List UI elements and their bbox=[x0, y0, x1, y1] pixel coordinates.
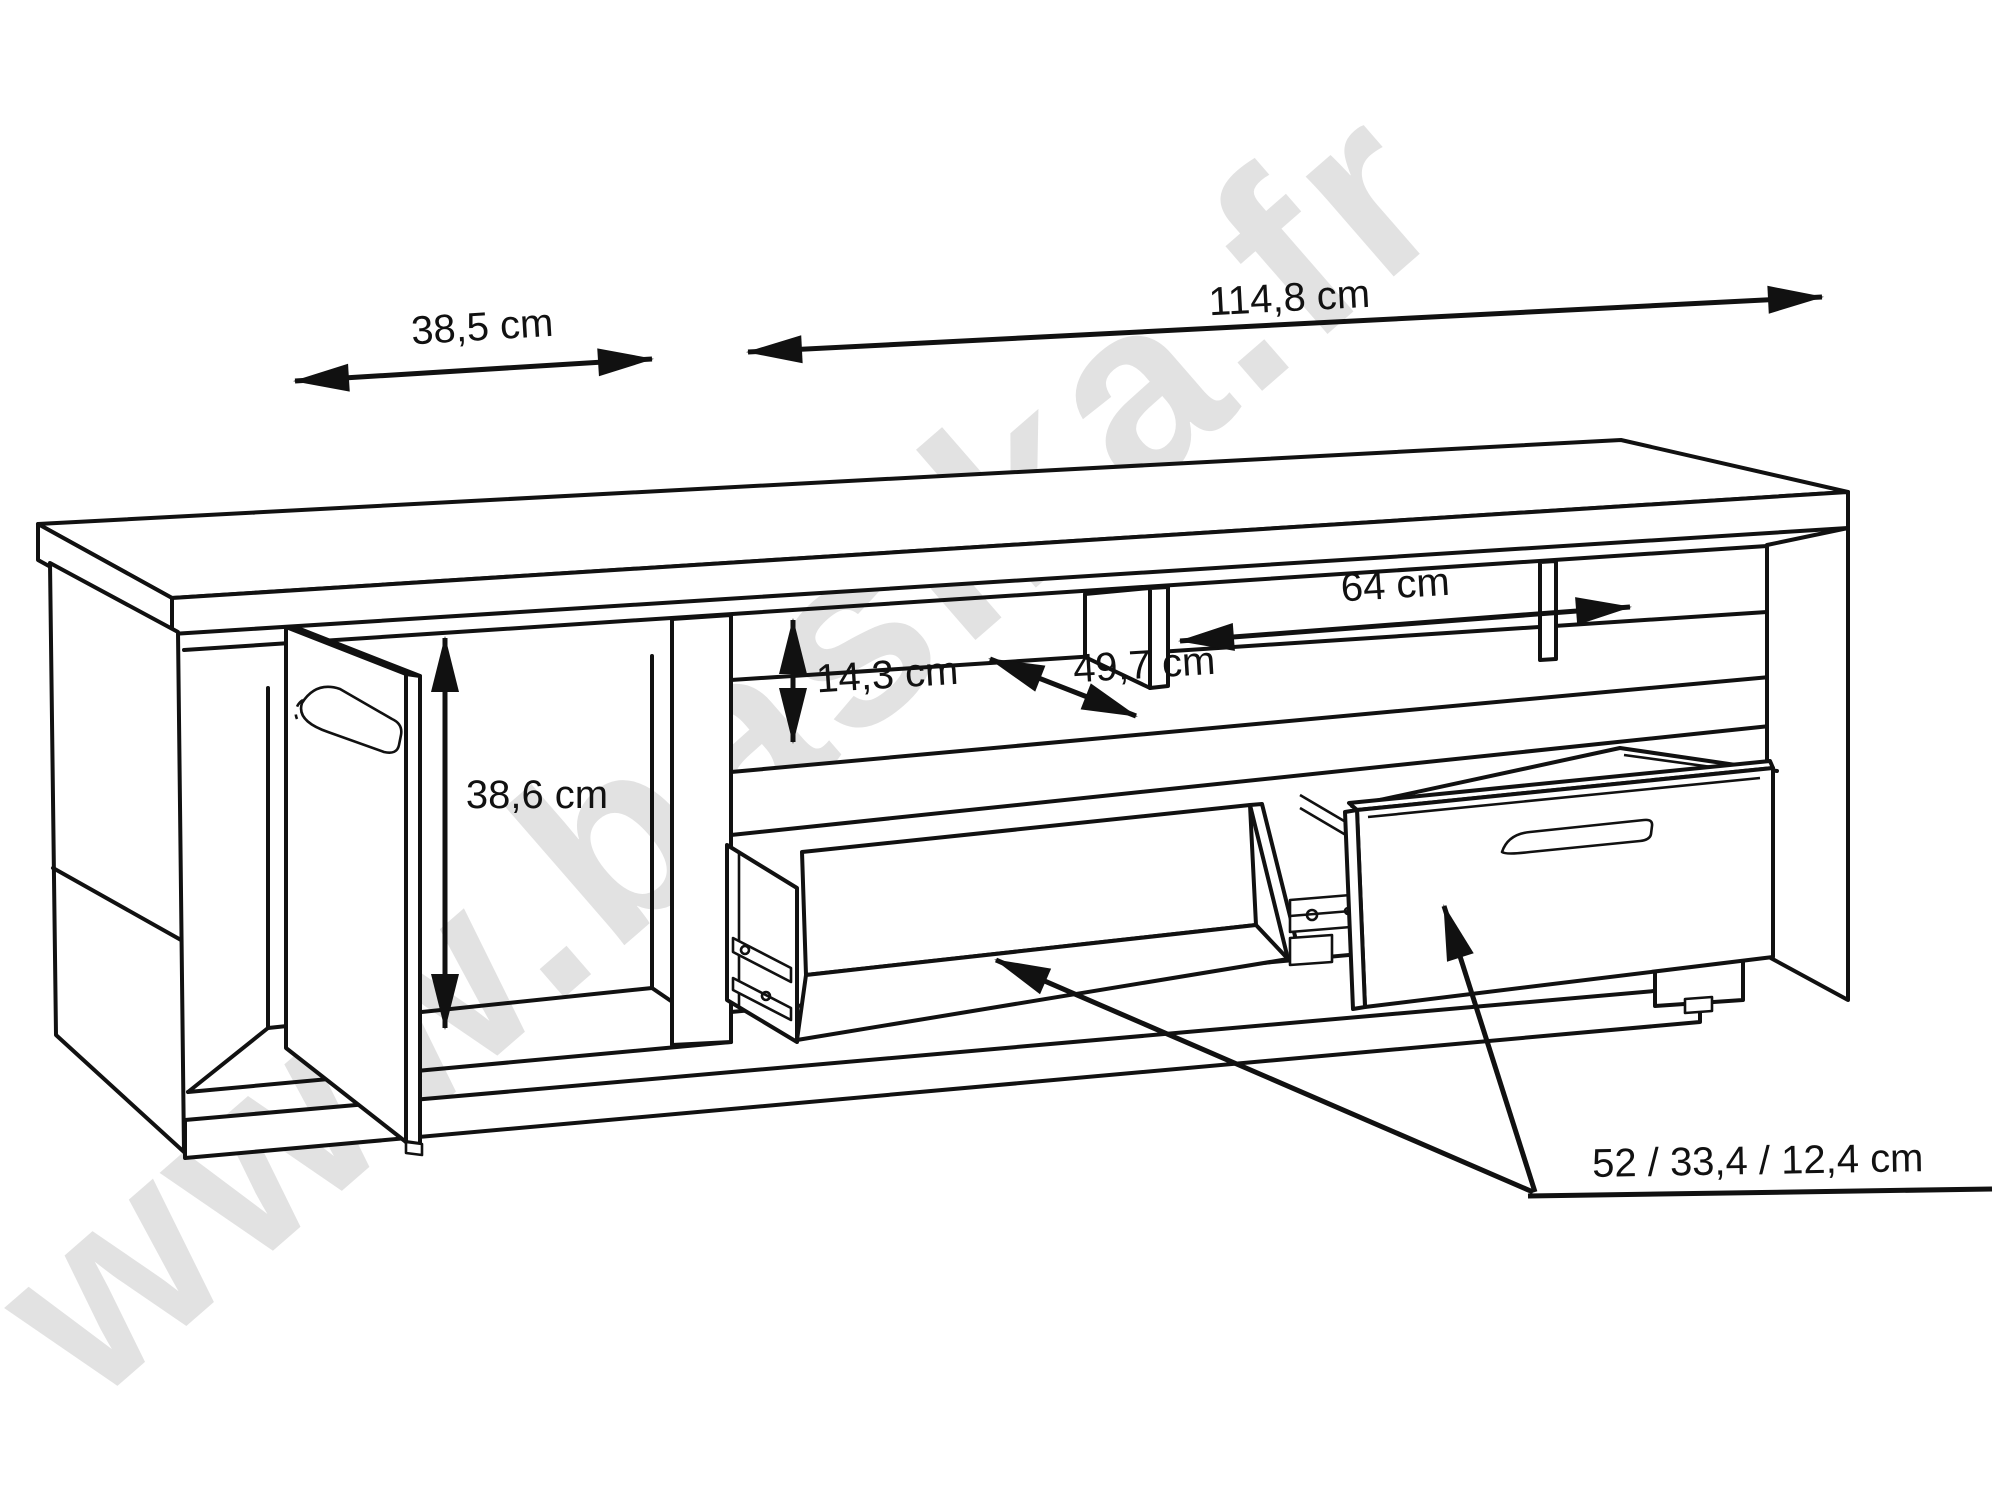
dim-label-shelf-height: 14,3 cm bbox=[815, 649, 960, 702]
dim-label-top-depth: 38,5 cm bbox=[410, 301, 555, 354]
dim-label-top-width: 114,8 cm bbox=[1207, 272, 1371, 324]
leader-underline bbox=[1528, 1189, 1992, 1196]
right-side-panel bbox=[1767, 528, 1848, 1000]
dim-label-door-compartment-height: 38,6 cm bbox=[466, 773, 608, 817]
dim-label-shelf-depth: 49,7 cm bbox=[1072, 639, 1217, 692]
dim-label-drawer-size: 52 / 33,4 / 12,4 cm bbox=[1592, 1136, 1924, 1186]
tv-stand-technical-drawing: www.basika.fr bbox=[0, 0, 2000, 1500]
dim-label-shelf-width: 64 cm bbox=[1339, 560, 1450, 611]
furniture-dimension-diagram: www.basika.fr bbox=[0, 0, 2000, 1500]
dim-arrow-top-depth bbox=[295, 359, 652, 381]
center-partition bbox=[672, 615, 731, 1045]
left-side-panel bbox=[50, 563, 184, 1152]
